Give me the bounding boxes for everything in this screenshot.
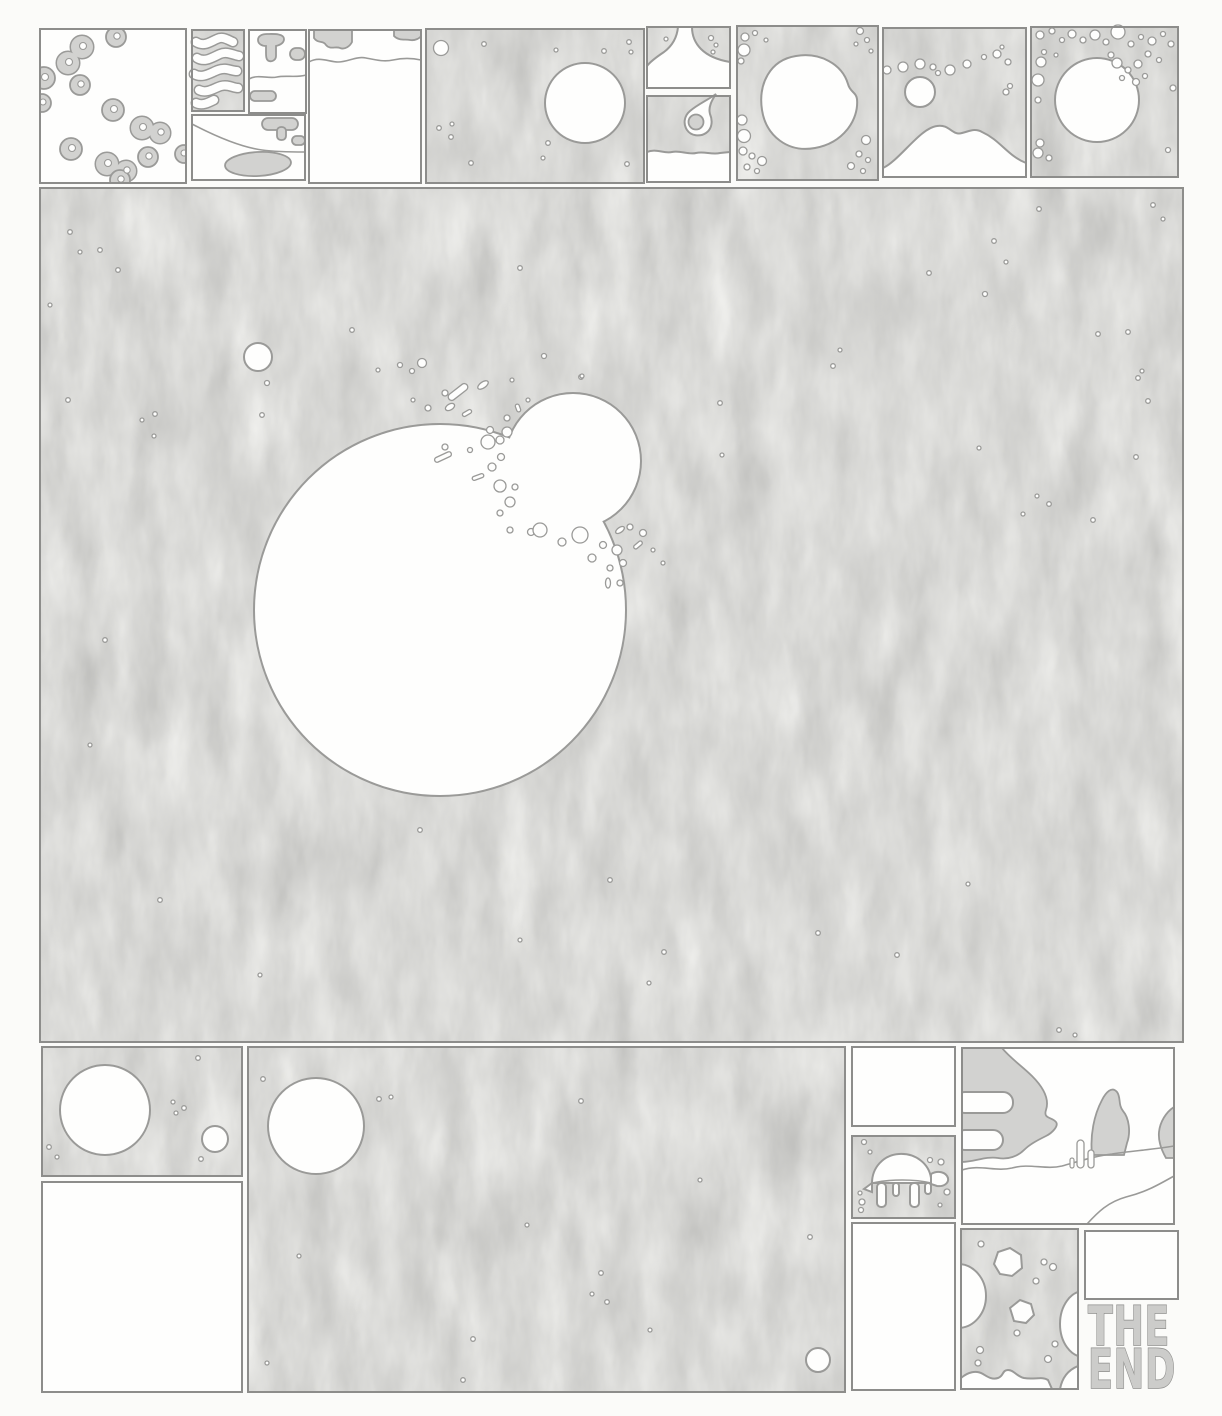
planet-icon [545, 63, 625, 143]
the-end-lettering: THE END [1088, 1295, 1176, 1401]
panel-space-bottom [248, 1047, 845, 1392]
panel-collision-main [40, 188, 1183, 1042]
panel-blank-mid [852, 1223, 955, 1390]
panel-turtle [852, 1136, 955, 1218]
the-end-text-line2: END [1088, 1338, 1176, 1401]
panel-bubble-planet [1031, 25, 1178, 177]
panel-moon-pair [42, 1047, 242, 1176]
panel-landscape [955, 1048, 1174, 1224]
moon-icon [434, 41, 449, 56]
panel-blank-bottom-left [42, 1182, 242, 1392]
moon-icon [202, 1126, 228, 1152]
comic-artwork: THE END [0, 0, 1222, 1416]
planet-icon [60, 1065, 150, 1155]
panel-mountains [883, 28, 1026, 177]
panel-blank-top-mid [852, 1047, 955, 1126]
moon-icon [244, 343, 272, 371]
moon-icon [806, 1348, 830, 1372]
panel-space-planet [426, 29, 644, 183]
panel-worm-strands [192, 30, 244, 111]
comic-page: THE END [0, 0, 1222, 1416]
panel-blank-end [1085, 1231, 1178, 1299]
panel-waterline [309, 30, 421, 183]
panel-cells [33, 27, 193, 190]
panel-comet [647, 94, 730, 182]
panel-blob-planet [737, 26, 878, 180]
panel-porous-rock [930, 1229, 1108, 1389]
panel-valley [647, 27, 730, 88]
panel-cloud-blobs-top [249, 30, 306, 113]
panel-cloud-blobs-bottom [192, 115, 305, 180]
planet-icon [268, 1078, 364, 1174]
